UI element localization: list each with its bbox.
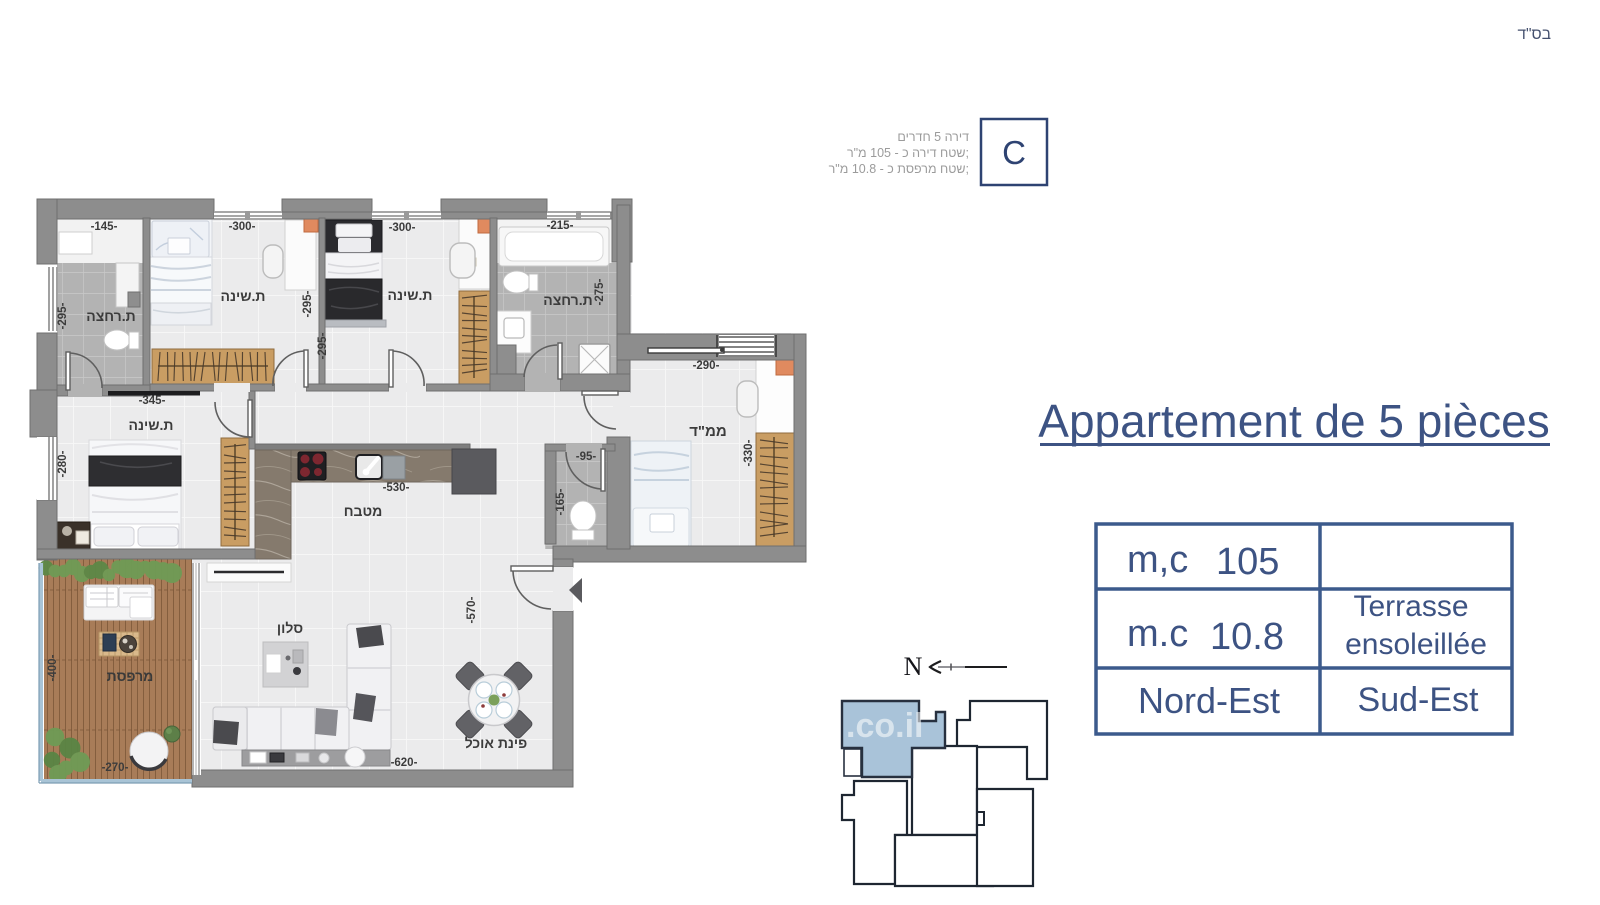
svg-text:מרפסת: מרפסת [107,668,154,684]
svg-text:Terrasse: Terrasse [1353,590,1468,623]
svg-text:שטח מרפסת כ - 10.8 מ"ר;: שטח מרפסת כ - 10.8 מ"ר; [829,162,969,176]
svg-text:מטבח: מטבח [344,503,383,519]
svg-text:-345-: -345- [139,395,166,407]
svg-text:Nord-Est: Nord-Est [1138,680,1280,721]
svg-text:-295-: -295- [317,332,329,359]
svg-text:סלון: סלון [277,620,303,636]
svg-text:10.8: 10.8 [1210,616,1284,658]
svg-text:-270-: -270- [102,762,129,774]
svg-text:פינת אוכל: פינת אוכל [465,735,528,751]
svg-text:-570-: -570- [466,596,478,623]
svg-text:ת.רחצה: ת.רחצה [543,292,592,308]
svg-text:ensoleillée: ensoleillée [1345,628,1487,661]
svg-text:.co.il: .co.il [846,707,923,745]
svg-text:-290-: -290- [693,360,720,372]
svg-text:ת.שינה: ת.שינה [221,288,266,304]
svg-text:-530-: -530- [383,482,410,494]
svg-text:ת.שינה: ת.שינה [388,287,433,303]
svg-text:-620-: -620- [391,757,418,769]
svg-text:-330-: -330- [743,439,755,466]
svg-text:-165-: -165- [555,488,567,515]
svg-text:-95-: -95- [576,451,597,463]
svg-text:-300-: -300- [229,221,256,233]
svg-text:m.c: m.c [1127,613,1188,655]
svg-text:-400-: -400- [47,654,59,681]
svg-text:ת.שינה: ת.שינה [129,417,174,433]
svg-text:N: N [904,652,923,681]
svg-text:שטח דירה כ - 105 מ"ר;: שטח דירה כ - 105 מ"ר; [847,146,969,160]
svg-text:-295-: -295- [302,290,314,317]
svg-text:-280-: -280- [57,450,69,477]
svg-text:-300-: -300- [389,222,416,234]
svg-text:105: 105 [1216,541,1279,583]
svg-text:-145-: -145- [91,221,118,233]
svg-text:בס"ד: בס"ד [1517,26,1551,43]
svg-text:-295-: -295- [57,302,69,329]
svg-text:m,c: m,c [1127,539,1188,581]
svg-text:ת.רחצה: ת.רחצה [86,308,135,324]
svg-text:-215-: -215- [547,220,574,232]
svg-text:דירה 5 חדרים: דירה 5 חדרים [897,130,969,144]
svg-text:C: C [1002,134,1026,171]
svg-text:Sud-Est: Sud-Est [1358,681,1479,719]
svg-text:-275-: -275- [594,278,606,305]
svg-text:Appartement de 5 pièces: Appartement de 5 pièces [1038,395,1549,447]
svg-text:ממ"ד: ממ"ד [689,423,727,440]
